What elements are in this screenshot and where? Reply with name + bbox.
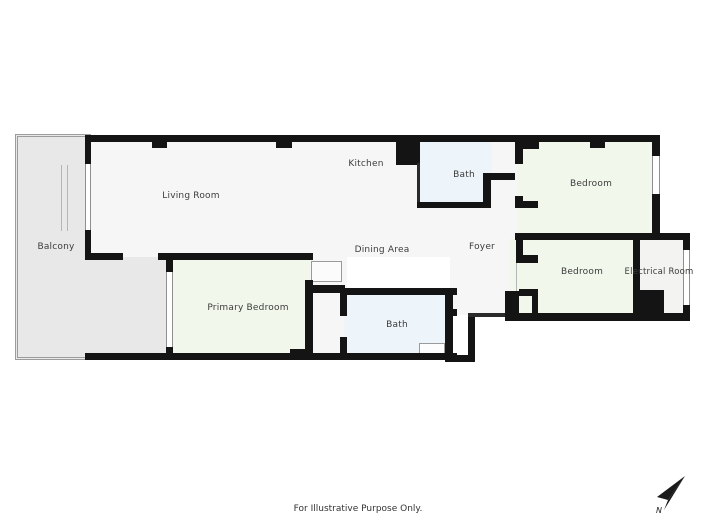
entry-nook-floor <box>491 180 516 205</box>
bedroom1-nw-block <box>523 142 539 149</box>
bath-bottom-east-wall <box>445 288 453 355</box>
top-exterior-wall <box>85 135 660 142</box>
room-label-foyer: Foyer <box>469 242 495 252</box>
electrical-east-wall-lower <box>683 305 690 321</box>
primary-bedroom-window <box>166 272 173 347</box>
bedrooms-divider-wall <box>515 233 690 240</box>
bedroom2-closet-wall-top <box>519 289 538 296</box>
bath-east-notch <box>445 309 457 316</box>
living-south-wall-left <box>85 253 123 260</box>
wall-column <box>276 142 292 148</box>
room-label-bedroom-bottom: Bedroom <box>561 267 603 277</box>
room-label-bath-bottom: Bath <box>386 320 408 330</box>
electrical-west-wall <box>633 240 640 292</box>
bath-bottom-west-wall-lower <box>340 337 347 353</box>
electrical-room-window <box>683 250 690 305</box>
bedroom1-east-wall-lower <box>652 194 660 240</box>
kitchen-corner-pier <box>396 142 420 165</box>
primary-west-wall-upper <box>166 256 173 272</box>
floor-plan: Living Room Kitchen Dining Area Foyer Ba… <box>0 0 705 528</box>
room-label-balcony: Balcony <box>37 242 74 252</box>
living-room-window <box>85 164 91 230</box>
bath-top-jog-vertical <box>483 173 491 206</box>
electrical-east-wall-upper <box>683 240 690 250</box>
room-label-electrical-room: Electrical Room <box>625 267 694 277</box>
bottom-right-exterior-wall <box>505 313 690 321</box>
bedroom1-east-wall-upper <box>652 142 660 156</box>
room-label-bath-top: Bath <box>453 170 475 180</box>
living-west-wall-upper <box>85 137 91 164</box>
niche-south-wall <box>445 355 475 362</box>
hall-closet <box>311 261 342 282</box>
north-arrow-icon <box>648 470 692 518</box>
bedroom1-west-wall-upper <box>515 142 523 164</box>
bedroom1-door-jamb <box>523 201 538 208</box>
bedroom2-closet-stub <box>516 255 538 263</box>
dining-south-wall <box>158 253 313 260</box>
room-label-bedroom-top: Bedroom <box>570 179 612 189</box>
bath-bottom-west-wall-upper <box>340 295 347 316</box>
north-label: N <box>656 506 662 515</box>
room-label-kitchen: Kitchen <box>348 159 383 169</box>
bedroom1-west-wall-lower <box>515 196 523 208</box>
bath-top-jog-horizontal <box>491 173 515 180</box>
bedroom2-closet-wall-side <box>532 296 538 314</box>
bottom-exterior-wall <box>85 353 457 360</box>
bedroom1-window <box>652 156 660 194</box>
bath-bottom-north-wall <box>340 288 457 295</box>
north-arrow: N <box>648 470 692 518</box>
room-label-dining-area: Dining Area <box>355 245 410 255</box>
balcony-floor-lower <box>15 257 175 360</box>
bedroom2-entry-line <box>516 263 519 291</box>
wall-column <box>152 142 167 148</box>
room-label-living-room: Living Room <box>162 191 219 201</box>
bedroom2-sw-pier <box>505 291 519 315</box>
room-label-primary-bedroom: Primary Bedroom <box>207 303 288 313</box>
foyer-south-line <box>468 313 505 317</box>
electrical-sw-pier <box>633 290 664 314</box>
balcony-divider-line <box>61 165 68 231</box>
primary-east-wall <box>305 280 313 360</box>
wall-column <box>590 142 605 148</box>
bath-top-south-wall <box>417 202 491 208</box>
disclaimer-text: For Illustrative Purpose Only. <box>294 504 423 514</box>
